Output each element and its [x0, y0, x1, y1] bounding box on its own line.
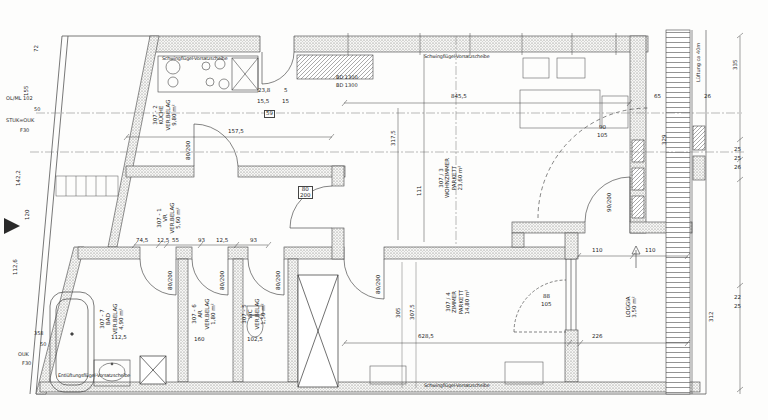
room-floor: PARKETT	[458, 289, 464, 314]
wall-note-stuk: STUK=OUK	[6, 118, 34, 123]
entrance-door	[260, 35, 294, 84]
room-label-loggia: LOGGIA 3,50 m²	[625, 296, 638, 318]
living-furniture	[520, 58, 628, 128]
dim-zi-3075: 307,5	[410, 304, 416, 320]
room-floor: VER.BELAG	[165, 100, 171, 131]
dim-lg-110a: 110	[592, 248, 603, 254]
wall-note-olml: OL/ML 102	[6, 96, 33, 101]
room-label-kueche: 307 - 2 KÜCHE VER.BELAG 9,80 m²	[152, 100, 177, 131]
wall-note-f30b: F30	[22, 361, 31, 366]
property-line	[30, 36, 706, 394]
window-note-top-left: Schwingflügel-Vorsatzscheibe	[162, 57, 227, 62]
dim-lr-8455: 845,5	[451, 94, 467, 100]
dim-k-15: 15	[282, 99, 289, 105]
dim-chain-745: 74,5	[136, 238, 148, 244]
door-label-bad: 80/200	[168, 271, 174, 290]
dim-k-5: 5	[284, 88, 288, 94]
dim-left-1422: 142,2	[16, 170, 22, 186]
dim-zi-6285: 628,5	[418, 334, 434, 340]
room-floor: VER.BELAG	[112, 304, 118, 335]
bedroom-furniture	[370, 362, 543, 384]
floor-plan-drawing	[0, 0, 768, 420]
room-floor: VER.BELAG	[204, 299, 210, 330]
dim-chain-125b: 12,5	[216, 238, 228, 244]
room-area: 14,80 m²	[464, 289, 470, 314]
room-area: 1,80 m²	[210, 299, 216, 330]
dim-chain-93b: 93	[250, 238, 257, 244]
dim-k-238: 23,8	[258, 88, 270, 94]
door-height: 200	[300, 193, 311, 199]
door-label-zimmer: 80/200	[376, 275, 382, 294]
dim-chain-125a: 12,5	[157, 238, 169, 244]
room-area: 4,90 m²	[118, 304, 124, 335]
dim-lr-3175: 317,5	[391, 130, 397, 146]
window-label-zi-w: 88	[543, 294, 550, 300]
dim-wc-1025: 102,5	[247, 337, 263, 343]
dim-lg-110b: 110	[645, 248, 656, 254]
floor-plan: Schwingflügel-Vorsatzscheibe Schwingflüg…	[0, 0, 768, 420]
room-label-vr: 307 - 1 VR VER.BELAG 5,60 m²	[156, 203, 181, 234]
cupboard-label-1: BD 1300	[336, 75, 358, 80]
wall-note-50: 50	[34, 107, 40, 112]
wall-note-ouk: OUK	[18, 352, 29, 357]
wall-note-lueftung: Lüftung ca 40m	[696, 43, 701, 82]
room-label-ar: 307 - 6 AR VER.BELAG 1,80 m²	[191, 299, 216, 330]
dim-r-25c: 25	[734, 304, 741, 310]
dim-left-120: 120	[25, 210, 31, 221]
door-label-ar: 80/200	[220, 271, 226, 290]
window-note-bottom-left: Entlüftungsflügel-Vorsatzscheibe	[58, 374, 130, 379]
dim-left-1126: 112,6	[13, 259, 19, 275]
door-label-hall-living: 80 200	[298, 186, 313, 199]
door-label-kitchen: 80/200	[186, 141, 192, 160]
window-note-top-right: Schwingflügel-Vorsatzscheibe	[424, 55, 489, 60]
window-label-lr-h: 105	[597, 133, 608, 139]
dim-k-155: 15,5	[257, 99, 269, 105]
dim-r-22: 22	[734, 295, 741, 301]
left-arrow-marker	[4, 218, 20, 234]
dim-left-72: 72	[34, 45, 40, 52]
room-area: 23,60 m²	[457, 158, 463, 198]
dim-r-329: 329	[662, 135, 668, 146]
dim-chain-55: 55	[172, 238, 179, 244]
room-name: WOHNZIMMER	[445, 158, 451, 198]
dim-zi-305: 305	[396, 308, 402, 319]
dim-r-25b: 25	[734, 156, 741, 162]
room-label-zimmer: 307 / 4 ZIMMER PARKETT 14,80 m²	[445, 289, 470, 314]
room-floor: VER.BELAG	[254, 299, 260, 330]
dim-lr-65: 65	[654, 94, 661, 100]
dim-k-59: 59	[264, 110, 275, 118]
dim-r-25a: 25	[734, 147, 741, 153]
room-label-wc: 307 - 5 WC VER.BELAG 1,50 m²	[241, 299, 266, 330]
cupboard-label-2: BD 1300	[336, 83, 358, 88]
door-label-wc: 80/200	[276, 271, 282, 290]
dim-k-1575: 157,5	[228, 129, 244, 135]
wall-note-358: 358	[34, 331, 44, 336]
dim-chain-93a: 93	[198, 238, 205, 244]
dim-lr-26: 26	[704, 94, 711, 100]
wall-note-50b: 50	[40, 342, 46, 347]
dim-r-335: 335	[733, 60, 739, 71]
room-label-wohnzimmer: 307 / 3 WOHNZIMMER PARKETT 23,60 m²	[438, 158, 463, 198]
window-label-zi-h: 105	[541, 302, 552, 308]
dim-r-312: 312	[709, 312, 715, 323]
room-label-bad: 307 - 7 BAD VER.BELAG 4,90 m²	[99, 304, 124, 335]
window-label-lr-w: 90	[599, 125, 606, 131]
window-note-bottom-right: Schwingflügel-Vorsatzscheibe	[424, 384, 489, 389]
dim-bad-1125: 112,5	[111, 335, 127, 341]
room-name: ZIMMER	[452, 289, 458, 314]
room-area: 9,80 m²	[171, 100, 177, 131]
stairs	[56, 176, 118, 196]
dim-lr-111: 111	[417, 186, 423, 197]
door-label-living-loggia: 90/200	[607, 193, 613, 212]
room-area: 3,50 m²	[631, 296, 637, 318]
dim-r-26: 26	[734, 165, 741, 171]
room-area: 5,60 m²	[175, 203, 181, 234]
dimension-lines	[124, 33, 743, 394]
dim-ar-160: 160	[194, 337, 205, 343]
room-floor: VER.BELAG	[169, 203, 175, 234]
room-area: 1,50 m²	[260, 299, 266, 330]
dim-left-155: 155	[24, 86, 30, 97]
walls	[36, 36, 700, 394]
wall-note-f30: F30	[20, 128, 29, 133]
dim-lg-226: 226	[592, 334, 603, 340]
